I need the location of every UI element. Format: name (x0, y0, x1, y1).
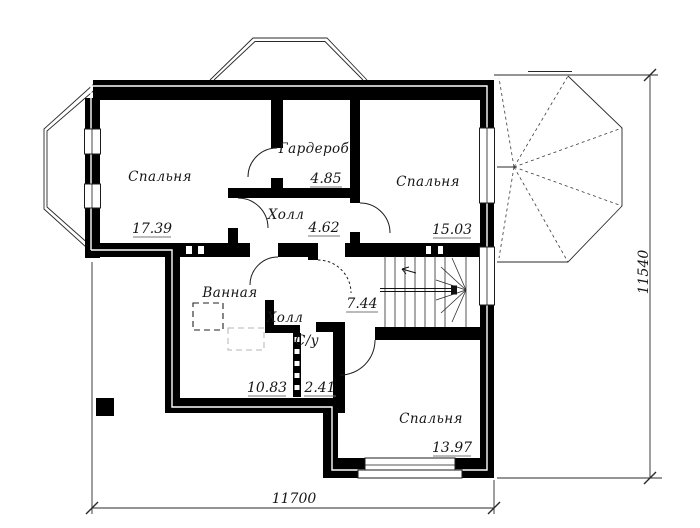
door-arc-wardrobe (248, 148, 277, 177)
floor-plan-page: Спальня 17.39 Гардероб 4.85 Холл 4.62 Сп… (0, 0, 700, 528)
room-label-bedroom2: Спальня (396, 174, 460, 190)
wall-b-stub (350, 232, 360, 243)
room-label-hall-lower: Холл (266, 310, 304, 326)
washer-faint (228, 328, 264, 350)
dim-width: 11700 (272, 491, 317, 507)
wall-stair-bottom (375, 327, 494, 340)
room-label-hall-upper: Холл (267, 207, 305, 223)
room-area-bedroom1: 17.39 (132, 221, 172, 237)
wall-bath-bottom (165, 398, 338, 413)
door-arc-wc (318, 260, 351, 293)
room-area-bedroom3: 13.97 (432, 440, 472, 456)
room-label-bedroom3: Спальня (399, 411, 463, 427)
room-area-bedroom2: 15.03 (432, 222, 472, 238)
wall-hall-stub-vert (308, 243, 318, 260)
stair-direction-arrow (402, 267, 416, 274)
room-label-wardrobe: Гардероб (278, 141, 350, 157)
wall-wc-right (333, 322, 345, 413)
porch-pillar (96, 398, 114, 416)
wall-vent-dots (186, 246, 443, 390)
window-left-lower (85, 184, 101, 208)
top-dormer-outline-inner (214, 42, 363, 81)
door-arc-bedroom2 (360, 203, 390, 233)
shower-tray (193, 303, 223, 330)
window-bottom-sill (358, 470, 462, 478)
wall-wardrobe-bottom (228, 188, 360, 198)
floor-plan-svg: Спальня 17.39 Гардероб 4.85 Холл 4.62 Сп… (0, 0, 700, 528)
room-label-bedroom1: Спальня (128, 169, 192, 185)
wall-mid-a3 (345, 243, 494, 257)
right-bay-polygon (497, 76, 622, 262)
room-area-bathroom: 10.83 (247, 380, 287, 396)
window-left-upper (85, 129, 101, 154)
wall-b-upper (350, 100, 360, 203)
room-label-bathroom: Ванная (201, 285, 257, 301)
stair-handrail (380, 286, 457, 295)
wall-bedroom1-stub (228, 228, 238, 243)
room-area-hall-upper: 4.62 (307, 220, 339, 236)
right-bay-hip-rays (499, 76, 622, 262)
door-arc-bathroom (250, 257, 278, 285)
room-label-wc: С/у (295, 333, 319, 349)
fixtures (193, 303, 264, 350)
top-dormer-outline (210, 38, 367, 80)
dim-height: 11540 (636, 250, 652, 295)
wall-top (93, 80, 494, 100)
wall-left (85, 98, 100, 258)
room-area-wardrobe: 4.85 (309, 171, 341, 187)
wall-wc-top-left (265, 325, 300, 333)
door-arc-bedroom3 (340, 340, 375, 375)
staircase (380, 256, 466, 327)
room-area-hall-lower: 7.44 (346, 296, 377, 312)
door-arc-bedroom1 (238, 198, 268, 228)
room-area-wc: 2.41 (303, 380, 335, 396)
